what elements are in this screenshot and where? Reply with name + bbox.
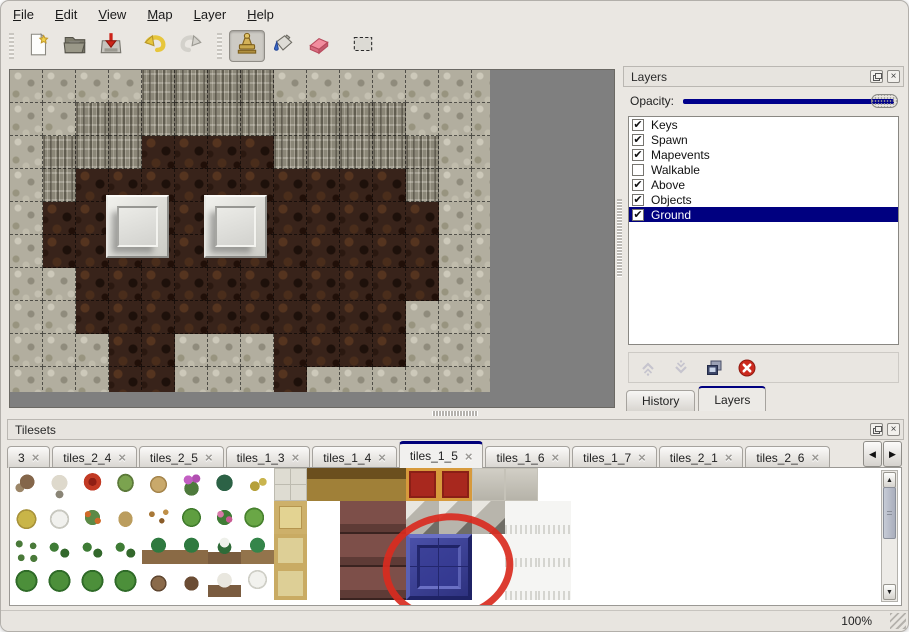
map-tile-light-rock[interactable] — [439, 367, 472, 392]
map-tile-light-rock[interactable] — [10, 235, 43, 268]
toolbar-drag-handle[interactable] — [9, 33, 14, 59]
close-tab-icon[interactable]: × — [552, 450, 560, 465]
map-tile-light-rock[interactable] — [472, 334, 490, 367]
map-tile-light-rock[interactable] — [43, 103, 76, 136]
layer-visibility-checkbox[interactable]: ✔ — [632, 119, 644, 131]
map-tile-light-rock[interactable] — [340, 367, 373, 392]
map-tile-light-rock[interactable] — [439, 103, 472, 136]
map-content[interactable] — [10, 70, 490, 392]
tile-empty[interactable] — [307, 534, 340, 567]
tileset-tab-bar: 3×tiles_2_4×tiles_2_5×tiles_1_3×tiles_1_… — [7, 440, 904, 468]
tile-wooden-table[interactable] — [373, 468, 406, 501]
map-tile-light-rock[interactable] — [439, 235, 472, 268]
close-tab-icon[interactable]: × — [118, 450, 126, 465]
map-tile-dark-ground[interactable] — [142, 268, 175, 301]
tile-gray-blocks[interactable] — [406, 501, 439, 534]
tile-maroon-furniture[interactable] — [340, 501, 373, 534]
map-tile-dark-ground[interactable] — [340, 268, 373, 301]
map-tile-cliff-rock[interactable] — [109, 136, 142, 169]
tile-empty[interactable] — [307, 567, 340, 600]
map-tile-dark-ground[interactable] — [142, 334, 175, 367]
tile-tan-floor[interactable] — [274, 501, 307, 534]
map-tile-dark-ground[interactable] — [373, 268, 406, 301]
map-tile-light-rock[interactable] — [109, 70, 142, 103]
map-tile-cliff-rock[interactable] — [274, 103, 307, 136]
tile-twisted-trunk[interactable] — [142, 567, 175, 600]
layer-row-spawn[interactable]: ✔Spawn — [629, 132, 898, 147]
tile-wooden-table[interactable] — [307, 468, 340, 501]
layer-row-keys[interactable]: ✔Keys — [629, 117, 898, 132]
tileset-tab-tiles_2_6[interactable]: tiles_2_6× — [745, 446, 830, 468]
tileset-tab-tiles_2_1[interactable]: tiles_2_1× — [659, 446, 744, 468]
map-tile-dark-ground[interactable] — [307, 202, 340, 235]
map-tile-light-rock[interactable] — [76, 334, 109, 367]
tile-gray-floor[interactable] — [472, 468, 505, 501]
map-tile-light-rock[interactable] — [439, 136, 472, 169]
blue-selected-tile[interactable] — [406, 534, 472, 600]
opacity-slider-handle[interactable] — [871, 94, 898, 108]
map-tile-light-rock[interactable] — [241, 334, 274, 367]
map-tile-light-rock[interactable] — [406, 103, 439, 136]
map-tile-light-rock[interactable] — [10, 268, 43, 301]
map-tile-dark-ground[interactable] — [340, 235, 373, 268]
scroll-tabs-left-button[interactable]: ◀ — [863, 441, 882, 467]
map-tile-light-rock[interactable] — [10, 103, 43, 136]
map-tile-dark-ground[interactable] — [43, 235, 76, 268]
close-tab-icon[interactable]: × — [725, 450, 733, 465]
map-tile-dark-ground[interactable] — [307, 169, 340, 202]
tile-bushy-tree[interactable] — [43, 567, 76, 600]
layer-row-objects[interactable]: ✔Objects — [629, 192, 898, 207]
layer-row-ground[interactable]: ✔Ground — [629, 207, 898, 222]
layer-name: Objects — [651, 193, 692, 207]
map-tile-light-rock[interactable] — [10, 136, 43, 169]
map-tile-dark-ground[interactable] — [274, 301, 307, 334]
tile-lily-pad-2[interactable] — [241, 501, 274, 534]
tile-snowy-palm[interactable] — [208, 534, 241, 567]
selection-tool-button[interactable] — [345, 30, 381, 62]
map-tile-light-rock[interactable] — [472, 70, 490, 103]
map-tile-cliff-rock[interactable] — [208, 103, 241, 136]
tile-snow-mound[interactable] — [43, 501, 76, 534]
menu-help[interactable]: Help — [247, 7, 274, 22]
tileset-tab-label: 3 — [18, 451, 25, 465]
map-tile-dark-ground[interactable] — [340, 334, 373, 367]
map-tile-light-rock[interactable] — [439, 268, 472, 301]
map-tile-cliff-rock[interactable] — [175, 70, 208, 103]
dock-tab-layers[interactable]: Layers — [698, 386, 766, 411]
map-tile-dark-ground[interactable] — [274, 334, 307, 367]
tile-bare-tree[interactable] — [10, 468, 43, 501]
tile-orange-flowers[interactable] — [76, 501, 109, 534]
tile-yellow-plant[interactable] — [241, 468, 274, 501]
map-tile-dark-ground[interactable] — [109, 301, 142, 334]
map-tile-dark-ground[interactable] — [406, 235, 439, 268]
map-tile-dark-ground[interactable] — [142, 136, 175, 169]
tileset-tab-tiles_1_4[interactable]: tiles_1_4× — [312, 446, 397, 468]
tileset-tab-tiles_1_5[interactable]: tiles_1_5× — [399, 441, 484, 468]
map-tile-dark-ground[interactable] — [109, 367, 142, 392]
toolbar — [1, 27, 908, 65]
tile-dry-grass[interactable] — [109, 501, 142, 534]
map-tile-dark-ground[interactable] — [76, 301, 109, 334]
tile-sprigs[interactable] — [10, 534, 43, 567]
map-tile-cliff-rock[interactable] — [340, 136, 373, 169]
tile-empty[interactable] — [571, 501, 604, 534]
tile-rose-bush[interactable] — [208, 501, 241, 534]
map-tile-cliff-rock[interactable] — [241, 103, 274, 136]
map-tile-light-rock[interactable] — [43, 334, 76, 367]
duplicate-layer-button[interactable] — [704, 358, 724, 378]
map-tile-dark-ground[interactable] — [241, 301, 274, 334]
close-tab-icon[interactable]: × — [811, 450, 819, 465]
map-tile-light-rock[interactable] — [373, 70, 406, 103]
tile-gray-blocks[interactable] — [439, 501, 472, 534]
menu-view[interactable]: View — [98, 7, 126, 22]
opacity-slider-track[interactable] — [683, 99, 894, 104]
map-tile-light-rock[interactable] — [10, 334, 43, 367]
map-tile-cliff-rock[interactable] — [373, 136, 406, 169]
map-tile-cliff-rock[interactable] — [241, 70, 274, 103]
delete-layer-icon — [737, 358, 757, 378]
tile-empty[interactable] — [538, 468, 571, 501]
menu-file[interactable]: File — [13, 7, 34, 22]
tileset-content[interactable]: ▲ ▼ — [9, 467, 902, 606]
tile-hay-mound[interactable] — [10, 501, 43, 534]
close-panel-icon[interactable]: × — [887, 70, 900, 83]
tile-empty[interactable] — [472, 567, 505, 600]
map-tile-dark-ground[interactable] — [76, 169, 109, 202]
opacity-slider[interactable] — [683, 93, 898, 109]
duplicate-layer-icon — [704, 358, 724, 378]
tile-white-coral-tree[interactable] — [43, 468, 76, 501]
tile-dark-trunk[interactable] — [175, 567, 208, 600]
tile-tree-stump[interactable] — [109, 468, 142, 501]
new-file-icon — [26, 31, 52, 62]
tile-maroon-furniture[interactable] — [340, 534, 373, 567]
map-tile-light-rock[interactable] — [439, 334, 472, 367]
map-tile-dark-ground[interactable] — [241, 268, 274, 301]
map-tile-cliff-rock[interactable] — [76, 103, 109, 136]
vertical-splitter[interactable] — [615, 66, 623, 409]
layer-row-walkable[interactable]: Walkable — [629, 162, 898, 177]
horizontal-splitter-handle[interactable] — [432, 411, 478, 416]
tile-empty[interactable] — [571, 567, 604, 600]
map-tile-cliff-rock[interactable] — [142, 103, 175, 136]
tile-empty[interactable] — [571, 534, 604, 567]
menu-edit[interactable]: Edit — [55, 7, 77, 22]
map-tile-cliff-rock[interactable] — [307, 136, 340, 169]
tile-tree-trunk[interactable] — [142, 468, 175, 501]
close-tab-icon[interactable]: × — [638, 450, 646, 465]
tile-bushy-tree[interactable] — [76, 567, 109, 600]
map-tile-light-rock[interactable] — [406, 367, 439, 392]
scrollbar-thumb[interactable] — [883, 487, 896, 539]
tileset-grid[interactable] — [10, 468, 604, 600]
map-tile-dark-ground[interactable] — [175, 268, 208, 301]
tileset-tab-3[interactable]: 3× — [7, 446, 50, 468]
map-tile-dark-ground[interactable] — [373, 301, 406, 334]
map-tile-dark-ground[interactable] — [340, 202, 373, 235]
tile-fern[interactable] — [208, 468, 241, 501]
map-tile-dark-ground[interactable] — [142, 367, 175, 392]
map-tile-light-rock[interactable] — [439, 301, 472, 334]
tileset-tab-tiles_2_4[interactable]: tiles_2_4× — [52, 446, 137, 468]
map-tile-dark-ground[interactable] — [175, 301, 208, 334]
tile-white-fur-rug[interactable] — [505, 501, 538, 534]
map-tile-light-rock[interactable] — [10, 367, 43, 392]
eraser-tool-button[interactable] — [301, 30, 337, 62]
map-tile-light-rock[interactable] — [472, 169, 490, 202]
move-layer-down-button[interactable] — [671, 358, 691, 378]
map-tile-light-rock[interactable] — [472, 202, 490, 235]
map-tile-light-rock[interactable] — [373, 367, 406, 392]
map-tile-dark-ground[interactable] — [208, 136, 241, 169]
tile-gray-floor[interactable] — [505, 468, 538, 501]
pedestal-object[interactable] — [106, 195, 169, 258]
map-tile-dark-ground[interactable] — [406, 268, 439, 301]
map-tile-light-rock[interactable] — [307, 70, 340, 103]
tile-snow-pine[interactable] — [241, 567, 274, 600]
toolbar-drag-handle-2[interactable] — [217, 33, 222, 59]
map-tile-light-rock[interactable] — [10, 169, 43, 202]
menu-map[interactable]: Map — [147, 7, 172, 22]
tile-fallen-leaves[interactable] — [142, 501, 175, 534]
tile-maroon-furniture[interactable] — [340, 567, 373, 600]
map-tile-dark-ground[interactable] — [76, 235, 109, 268]
tile-stone-floor[interactable] — [274, 468, 307, 501]
resize-grip-icon[interactable] — [890, 613, 906, 629]
map-tile-cliff-rock[interactable] — [43, 136, 76, 169]
map-tile-dark-ground[interactable] — [76, 268, 109, 301]
map-tile-light-rock[interactable] — [76, 70, 109, 103]
map-tile-cliff-rock[interactable] — [307, 103, 340, 136]
layer-row-above[interactable]: ✔Above — [629, 177, 898, 192]
map-tile-light-rock[interactable] — [76, 367, 109, 392]
map-tile-light-rock[interactable] — [340, 70, 373, 103]
close-tab-icon[interactable]: × — [32, 450, 40, 465]
scroll-down-button[interactable]: ▼ — [883, 584, 896, 600]
float-panel-icon[interactable] — [870, 70, 883, 83]
tile-white-fur-rug[interactable] — [505, 534, 538, 567]
layer-buttons — [628, 352, 899, 383]
tileset-tab-tiles_2_5[interactable]: tiles_2_5× — [139, 446, 224, 468]
layer-name: Mapevents — [651, 148, 710, 162]
layer-visibility-checkbox[interactable]: ✔ — [632, 194, 644, 206]
map-tile-light-rock[interactable] — [274, 70, 307, 103]
map-tile-light-rock[interactable] — [472, 235, 490, 268]
save-file-button[interactable] — [93, 30, 129, 62]
fill-tool-button[interactable] — [265, 30, 301, 62]
stamp-tool-button[interactable] — [229, 30, 265, 62]
float-panel-icon[interactable] — [870, 423, 883, 436]
map-tile-dark-ground[interactable] — [208, 301, 241, 334]
map-tile-light-rock[interactable] — [472, 367, 490, 392]
map-tile-dark-ground[interactable] — [274, 169, 307, 202]
map-tile-light-rock[interactable] — [175, 334, 208, 367]
map-tile-cliff-rock[interactable] — [274, 136, 307, 169]
map-tile-cliff-rock[interactable] — [175, 103, 208, 136]
map-tile-cliff-rock[interactable] — [109, 103, 142, 136]
redo-button[interactable] — [173, 30, 209, 62]
move-layer-up-button[interactable] — [638, 358, 658, 378]
map-tile-light-rock[interactable] — [472, 136, 490, 169]
map-tile-dark-ground[interactable] — [307, 334, 340, 367]
tileset-tab-tiles_1_6[interactable]: tiles_1_6× — [485, 446, 570, 468]
map-tile-dark-ground[interactable] — [307, 235, 340, 268]
map-tile-dark-ground[interactable] — [373, 169, 406, 202]
map-tile-light-rock[interactable] — [439, 202, 472, 235]
map-tile-dark-ground[interactable] — [406, 202, 439, 235]
map-tile-cliff-rock[interactable] — [406, 136, 439, 169]
map-tile-dark-ground[interactable] — [340, 169, 373, 202]
map-tile-dark-ground[interactable] — [274, 268, 307, 301]
dock-tab-history[interactable]: History — [626, 390, 695, 411]
tile-palm-tree[interactable] — [142, 534, 175, 567]
undo-button[interactable] — [137, 30, 173, 62]
layer-visibility-checkbox[interactable]: ✔ — [632, 149, 644, 161]
map-tile-dark-ground[interactable] — [373, 334, 406, 367]
close-tab-icon[interactable]: × — [205, 450, 213, 465]
map-tile-light-rock[interactable] — [307, 367, 340, 392]
map-tile-dark-ground[interactable] — [43, 202, 76, 235]
map-tile-cliff-rock[interactable] — [406, 169, 439, 202]
tile-bushy-tree[interactable] — [10, 567, 43, 600]
map-tile-dark-ground[interactable] — [142, 301, 175, 334]
map-tile-light-rock[interactable] — [10, 202, 43, 235]
map-tile-light-rock[interactable] — [10, 301, 43, 334]
tile-palm-tree[interactable] — [175, 534, 208, 567]
vertical-splitter-handle[interactable] — [617, 199, 622, 277]
map-tile-light-rock[interactable] — [439, 70, 472, 103]
map-tile-cliff-rock[interactable] — [76, 136, 109, 169]
map-tile-dark-ground[interactable] — [76, 202, 109, 235]
map-tile-light-rock[interactable] — [439, 169, 472, 202]
scroll-tabs-right-button[interactable]: ▶ — [883, 441, 902, 467]
tile-empty[interactable] — [571, 468, 604, 501]
open-file-button[interactable] — [57, 30, 93, 62]
map-tile-light-rock[interactable] — [208, 334, 241, 367]
tileset-scrollbar[interactable]: ▲ ▼ — [881, 470, 898, 602]
tile-white-fur-rug[interactable] — [505, 567, 538, 600]
layer-list[interactable]: ✔Keys✔Spawn✔MapeventsWalkable✔Above✔Obje… — [628, 116, 899, 345]
map-tile-dark-ground[interactable] — [274, 202, 307, 235]
map-tile-dark-ground[interactable] — [307, 301, 340, 334]
tile-wooden-table[interactable] — [340, 468, 373, 501]
map-tile-dark-ground[interactable] — [241, 136, 274, 169]
map-tile-light-rock[interactable] — [472, 268, 490, 301]
layer-visibility-checkbox[interactable]: ✔ — [632, 134, 644, 146]
close-tab-icon[interactable]: × — [378, 450, 386, 465]
map-tile-light-rock[interactable] — [406, 70, 439, 103]
map-tile-light-rock[interactable] — [43, 367, 76, 392]
blue-tile-inner — [417, 545, 461, 589]
map-tile-light-rock[interactable] — [406, 334, 439, 367]
layer-visibility-checkbox[interactable]: ✔ — [632, 209, 644, 221]
close-tab-icon[interactable]: × — [465, 449, 473, 464]
tile-palm-tree-2[interactable] — [241, 534, 274, 567]
map-tile-dark-ground[interactable] — [373, 235, 406, 268]
layer-visibility-checkbox[interactable] — [632, 164, 644, 176]
delete-layer-button[interactable] — [737, 358, 757, 378]
tile-empty[interactable] — [472, 534, 505, 567]
map-tile-light-rock[interactable] — [43, 301, 76, 334]
map-tile-light-rock[interactable] — [406, 301, 439, 334]
map-tile-dark-ground[interactable] — [109, 334, 142, 367]
tile-green-shrub[interactable] — [109, 534, 142, 567]
tile-bushy-tree[interactable] — [109, 567, 142, 600]
map-tile-dark-ground[interactable] — [307, 268, 340, 301]
scroll-up-button[interactable]: ▲ — [883, 472, 896, 488]
tile-empty[interactable] — [307, 501, 340, 534]
map-tile-light-rock[interactable] — [472, 103, 490, 136]
map-tile-light-rock[interactable] — [208, 367, 241, 392]
tileset-tab-label: tiles_1_3 — [237, 451, 285, 465]
map-tile-dark-ground[interactable] — [175, 136, 208, 169]
tile-lily-pad[interactable] — [175, 501, 208, 534]
map-tile-dark-ground[interactable] — [274, 235, 307, 268]
map-canvas[interactable] — [9, 69, 615, 408]
layer-row-mapevents[interactable]: ✔Mapevents — [629, 147, 898, 162]
layer-name: Ground — [651, 208, 691, 222]
tile-white-fur-rug[interactable] — [538, 534, 571, 567]
tile-tan-floor-large[interactable] — [274, 567, 307, 600]
tile-red-carpet[interactable] — [439, 468, 472, 501]
map-tile-cliff-rock[interactable] — [208, 70, 241, 103]
tile-red-flower-bush[interactable] — [76, 468, 109, 501]
tile-white-fur-rug[interactable] — [538, 501, 571, 534]
layers-dock-tabs: HistoryLayers — [626, 386, 769, 411]
pedestal-inner — [215, 206, 256, 247]
map-tile-light-rock[interactable] — [175, 367, 208, 392]
app-window: FileEditViewMapLayerHelp — [0, 0, 909, 632]
pedestal-object[interactable] — [204, 195, 267, 258]
map-tile-dark-ground[interactable] — [208, 268, 241, 301]
new-file-button[interactable] — [21, 30, 57, 62]
tile-red-carpet[interactable] — [406, 468, 439, 501]
map-tile-light-rock[interactable] — [472, 301, 490, 334]
tile-green-shrub[interactable] — [76, 534, 109, 567]
map-tile-dark-ground[interactable] — [274, 367, 307, 392]
tile-green-shrub[interactable] — [43, 534, 76, 567]
tile-gray-blocks[interactable] — [472, 501, 505, 534]
map-tile-dark-ground[interactable] — [340, 301, 373, 334]
map-tile-cliff-rock[interactable] — [142, 70, 175, 103]
tile-white-fur-rug[interactable] — [538, 567, 571, 600]
map-tile-dark-ground[interactable] — [109, 268, 142, 301]
map-tile-light-rock[interactable] — [10, 70, 43, 103]
tileset-tab-tiles_1_3[interactable]: tiles_1_3× — [226, 446, 311, 468]
tile-maroon-furniture[interactable] — [373, 534, 406, 567]
tile-purple-flowers[interactable] — [175, 468, 208, 501]
tile-tan-floor-large[interactable] — [274, 534, 307, 567]
layer-visibility-checkbox[interactable]: ✔ — [632, 179, 644, 191]
map-tile-cliff-rock[interactable] — [373, 103, 406, 136]
close-tab-icon[interactable]: × — [292, 450, 300, 465]
map-tile-dark-ground[interactable] — [373, 202, 406, 235]
map-tile-cliff-rock[interactable] — [340, 103, 373, 136]
map-tile-light-rock[interactable] — [43, 268, 76, 301]
close-panel-icon[interactable]: × — [887, 423, 900, 436]
tileset-tab-tiles_1_7[interactable]: tiles_1_7× — [572, 446, 657, 468]
map-tile-light-rock[interactable] — [241, 367, 274, 392]
menu-layer[interactable]: Layer — [194, 7, 227, 22]
tile-winter-tree[interactable] — [208, 567, 241, 600]
tile-maroon-furniture[interactable] — [373, 501, 406, 534]
map-tile-cliff-rock[interactable] — [43, 169, 76, 202]
tile-maroon-furniture[interactable] — [373, 567, 406, 600]
map-tile-light-rock[interactable] — [43, 70, 76, 103]
